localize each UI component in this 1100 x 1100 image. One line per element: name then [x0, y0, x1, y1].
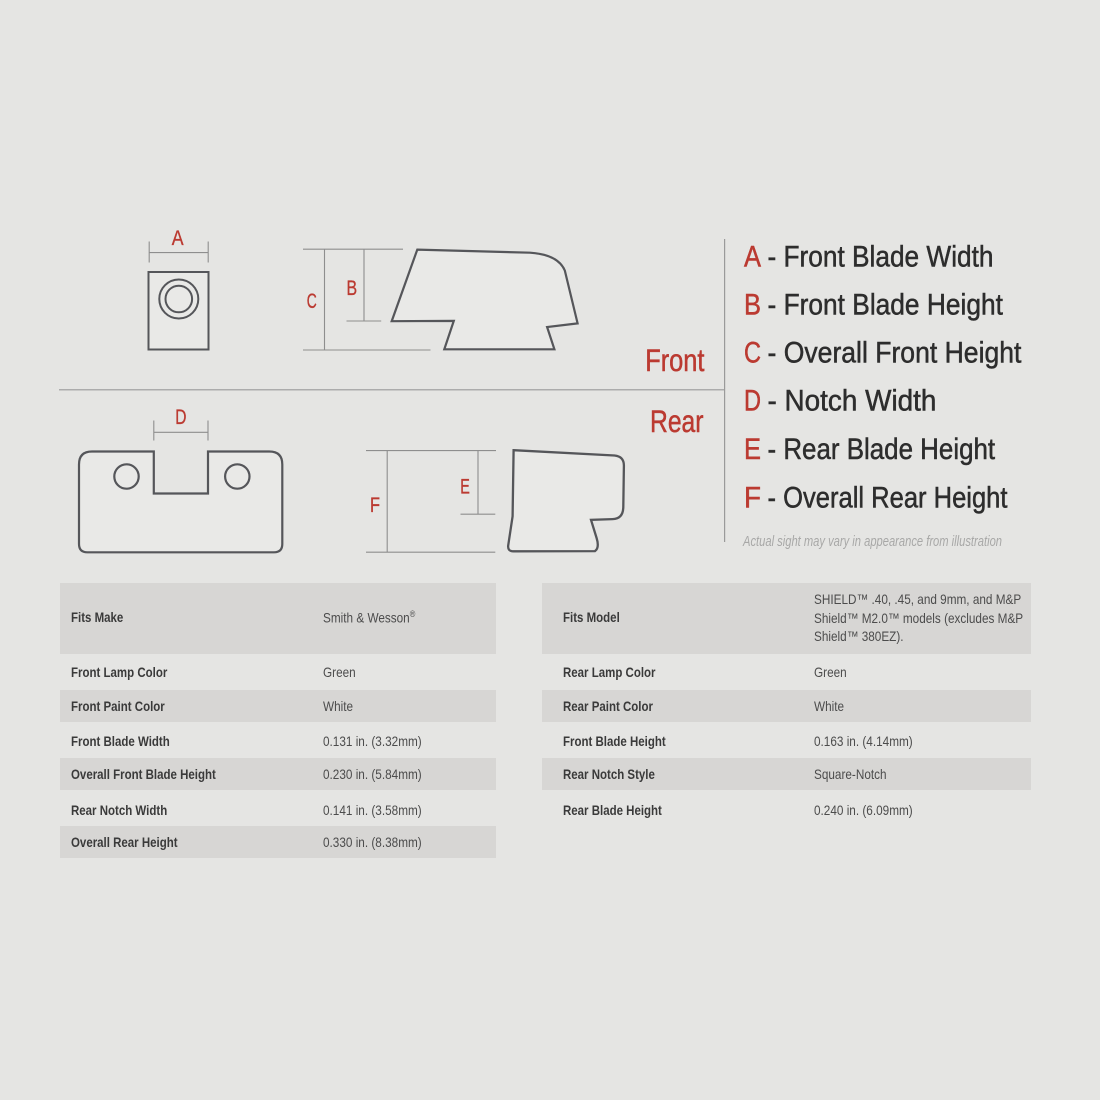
- svg-text:F: F: [370, 493, 380, 517]
- svg-text:C: C: [307, 289, 317, 313]
- svg-text:- Notch Width: - Notch Width: [768, 385, 937, 418]
- svg-text:D: D: [175, 405, 186, 429]
- svg-text:A: A: [172, 226, 184, 250]
- svg-text:Actual sight may vary in appea: Actual sight may vary in appearance from…: [742, 534, 1002, 550]
- svg-text:Front: Front: [645, 342, 704, 378]
- svg-text:- Front Blade Width: - Front Blade Width: [768, 241, 994, 274]
- svg-text:E: E: [460, 474, 470, 498]
- svg-text:E: E: [744, 433, 761, 466]
- svg-text:- Overall Rear Height: - Overall Rear Height: [768, 482, 1009, 515]
- svg-text:B: B: [744, 289, 761, 322]
- svg-text:- Overall Front Height: - Overall Front Height: [768, 337, 1022, 370]
- svg-text:- Front Blade Height: - Front Blade Height: [768, 289, 1004, 322]
- svg-text:D: D: [744, 385, 761, 418]
- svg-text:C: C: [744, 337, 761, 370]
- svg-text:Rear: Rear: [650, 403, 704, 439]
- svg-text:- Rear Blade Height: - Rear Blade Height: [768, 433, 996, 466]
- svg-text:B: B: [347, 276, 358, 300]
- svg-text:A: A: [744, 241, 761, 274]
- svg-text:F: F: [744, 482, 761, 515]
